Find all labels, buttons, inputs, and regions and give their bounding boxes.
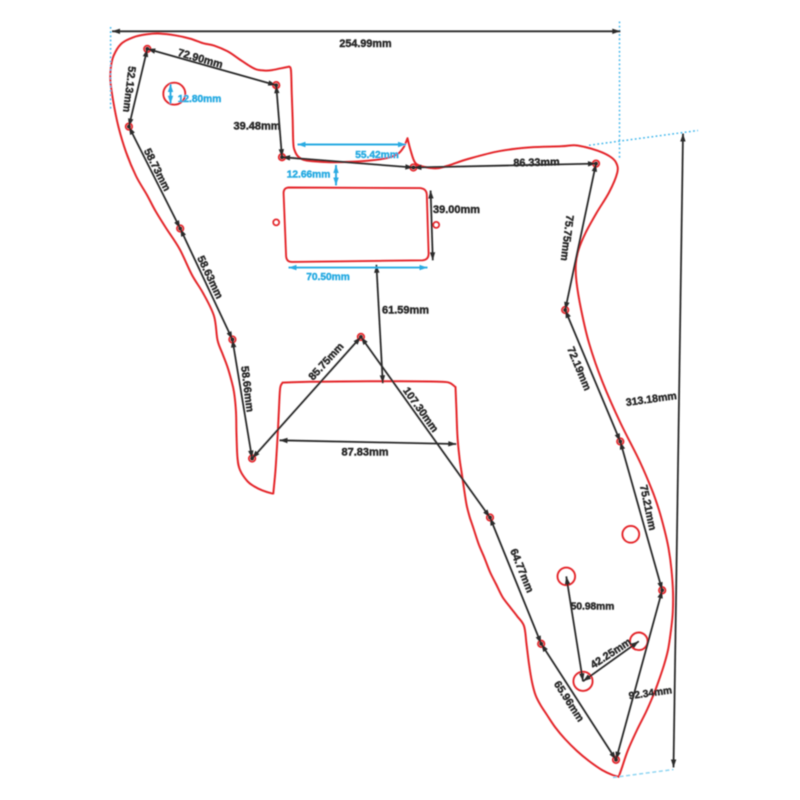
svg-text:75.75mm: 75.75mm: [558, 214, 576, 261]
svg-text:12.80mm: 12.80mm: [178, 94, 222, 105]
svg-text:86.33mm: 86.33mm: [513, 156, 560, 169]
svg-text:39.00mm: 39.00mm: [433, 204, 480, 216]
svg-text:58.73mm: 58.73mm: [141, 147, 173, 194]
svg-text:39.48mm: 39.48mm: [233, 120, 280, 132]
svg-text:42.25mm: 42.25mm: [588, 636, 633, 671]
svg-text:75.21mm: 75.21mm: [637, 484, 658, 532]
svg-text:12.66mm: 12.66mm: [287, 170, 331, 181]
svg-text:72.90mm: 72.90mm: [176, 47, 224, 71]
svg-text:107.30mm: 107.30mm: [400, 385, 440, 434]
svg-text:72.19mm: 72.19mm: [564, 345, 593, 392]
svg-text:70.50mm: 70.50mm: [306, 272, 350, 283]
svg-text:55.42mm: 55.42mm: [355, 150, 399, 161]
svg-text:254.99mm: 254.99mm: [339, 38, 391, 50]
svg-text:52.13mm: 52.13mm: [120, 66, 138, 113]
svg-text:87.83mm: 87.83mm: [341, 446, 388, 458]
svg-text:313.18mm: 313.18mm: [625, 390, 677, 409]
svg-text:61.59mm: 61.59mm: [382, 304, 429, 316]
svg-text:50.98mm: 50.98mm: [571, 601, 615, 612]
svg-text:58.63mm: 58.63mm: [194, 254, 225, 301]
